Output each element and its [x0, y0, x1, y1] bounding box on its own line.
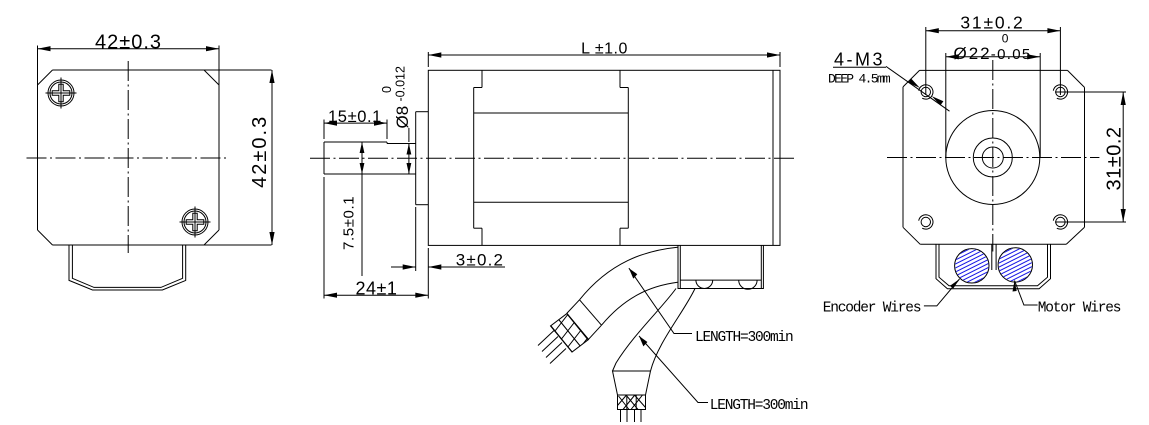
svg-text:0: 0	[1002, 32, 1009, 46]
svg-text:Encoder Wires: Encoder Wires	[823, 301, 921, 317]
svg-text:3±0.2: 3±0.2	[456, 251, 504, 270]
svg-text:Motor Wires: Motor Wires	[1038, 301, 1121, 317]
svg-text:Ø22: Ø22	[954, 44, 992, 63]
svg-text:LENGTH=300min: LENGTH=300min	[695, 330, 793, 346]
svg-text:15±0.1: 15±0.1	[328, 108, 382, 126]
svg-text:31±0.2: 31±0.2	[1104, 126, 1126, 190]
svg-text:DEEP 4.5mm: DEEP 4.5mm	[828, 72, 891, 87]
svg-text:42±0.3: 42±0.3	[249, 115, 271, 188]
svg-text:42±0.3: 42±0.3	[95, 31, 162, 53]
svg-text:Ø8: Ø8	[393, 106, 412, 129]
svg-text:7.5±0.1: 7.5±0.1	[341, 196, 358, 250]
svg-text:4-M3: 4-M3	[834, 50, 885, 70]
svg-text:L ±1.0: L ±1.0	[581, 41, 628, 58]
svg-text:-0.05: -0.05	[991, 46, 1032, 63]
svg-text:0: 0	[380, 86, 394, 93]
svg-text:24±1: 24±1	[356, 278, 398, 298]
svg-text:-0.012: -0.012	[394, 66, 408, 101]
svg-text:LENGTH=300min: LENGTH=300min	[710, 398, 808, 414]
svg-text:31±0.2: 31±0.2	[960, 13, 1024, 33]
